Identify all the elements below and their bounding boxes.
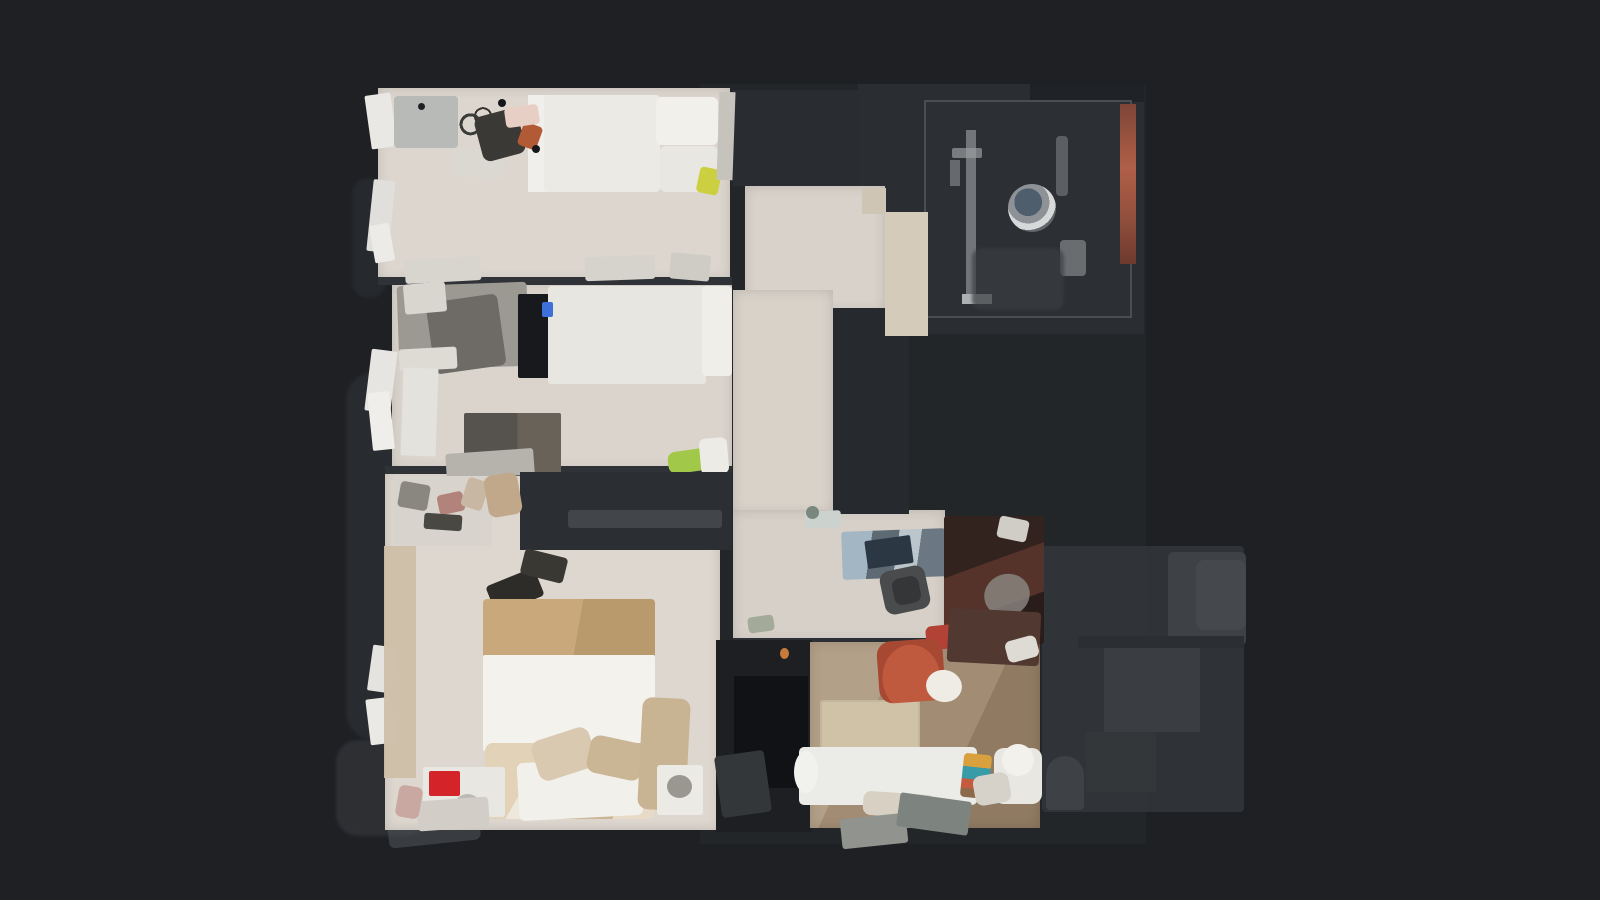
bed-b-pillow — [702, 286, 732, 376]
nightstand-right-bowl — [667, 775, 692, 798]
ghost-right-low — [1086, 732, 1156, 792]
ghost-right-bar — [1078, 636, 1244, 648]
kitchen-bracket-2 — [950, 160, 960, 186]
floor-dot-3 — [418, 103, 425, 110]
candle-dot — [780, 648, 789, 659]
beige-bag-c — [483, 471, 524, 518]
kitchen-bracket-1 — [952, 148, 982, 158]
dresser-clutter-1 — [397, 481, 431, 512]
floor-dot-1 — [498, 99, 506, 107]
viewer-stage — [0, 0, 1600, 900]
room-a-desk-1 — [585, 255, 656, 281]
clutter-sequin-fabric — [394, 96, 458, 148]
white-lamp-top — [1002, 744, 1034, 776]
window-bench-item — [806, 506, 819, 519]
room-a-closet-strip — [716, 92, 735, 181]
rug-living — [820, 700, 920, 750]
bed-b-blue-item — [542, 302, 553, 317]
bed-a-duvet — [544, 95, 660, 192]
room-c-light-bar — [568, 510, 722, 528]
mid-void — [833, 308, 909, 514]
room-a-bench-left — [404, 256, 481, 284]
dresser-clutter-3 — [423, 513, 462, 532]
desk-b — [400, 367, 438, 456]
kitchen-mark-right-1 — [1056, 136, 1068, 196]
bed-c-headboard — [483, 599, 655, 659]
ghost-right-notch — [1196, 560, 1246, 630]
ghost-right-mid — [1104, 648, 1200, 732]
kitchen-round-table — [1008, 184, 1056, 232]
closet-white-top — [403, 281, 447, 315]
floor-dot-2 — [532, 145, 540, 153]
tv-gray-item — [714, 750, 772, 818]
sofa-armrest — [794, 751, 818, 793]
hall-vertical-floor — [733, 290, 833, 514]
kitchen-reflection — [972, 248, 1064, 310]
ghost-right-bump — [1046, 756, 1084, 810]
entry-beige-main — [885, 212, 928, 336]
kitchen-orange-strip — [1120, 104, 1136, 264]
curtain-left-c — [384, 546, 416, 778]
room-a-desk-2 — [669, 252, 711, 281]
floor-cushion — [972, 771, 1013, 807]
entry-beige-upper — [862, 188, 886, 214]
floorplan-canvas[interactable] — [0, 0, 1600, 900]
bed-b-striped — [548, 286, 706, 384]
room-c-bottom-clutter-1 — [416, 797, 490, 832]
bed-a-pillow-1 — [656, 97, 718, 145]
red-box — [429, 771, 460, 796]
white-bag-b — [698, 437, 729, 475]
